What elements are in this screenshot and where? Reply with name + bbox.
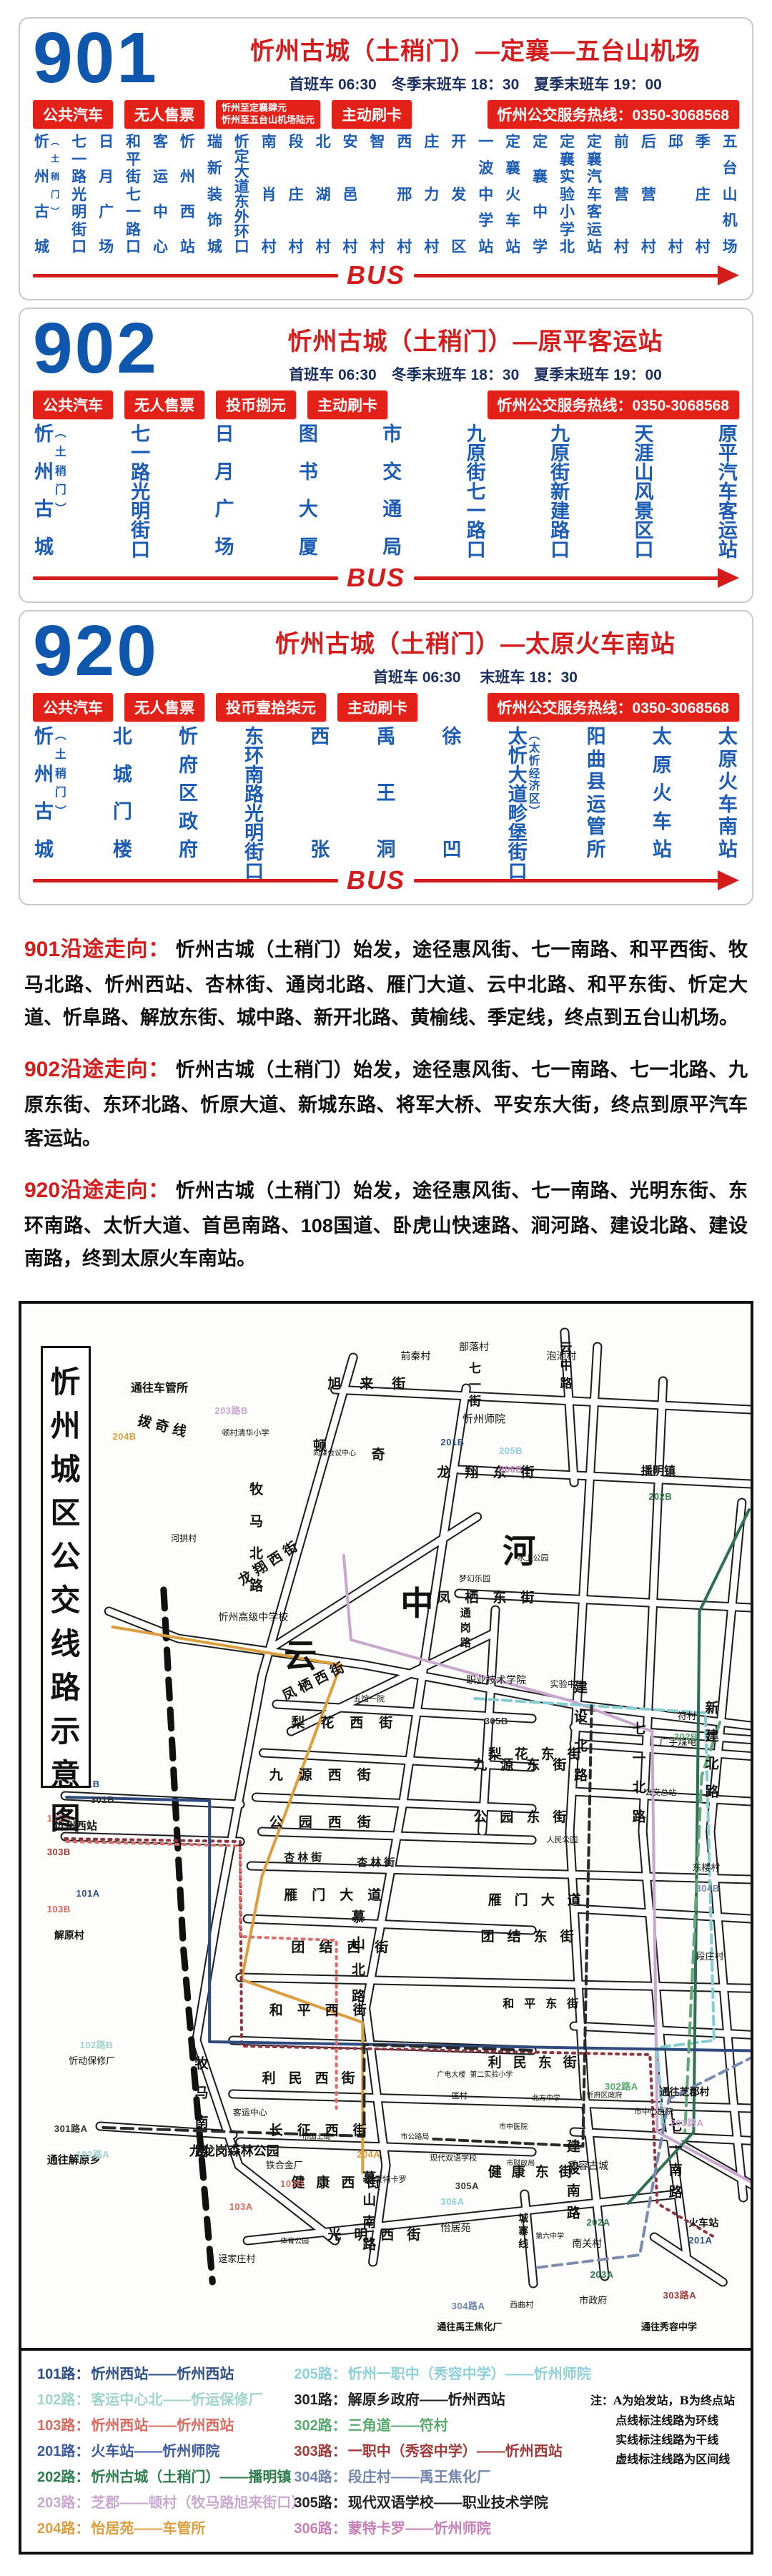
legend-column-right: 205路：忻州一职中（秀容中学）——忻州师院301路：解原乡政府——忻州西站30… xyxy=(294,2362,580,2537)
bus-stop: 定襄实验小学北 xyxy=(560,134,575,255)
legend-item: 303路：一职中（秀容中学）——忻州西站 xyxy=(294,2439,580,2460)
route-description: 901沿途走向：忻州古城（土稍门）始发，途径惠风街、七一南路、和平西街、牧马北路… xyxy=(24,931,748,1034)
legend-item: 302路：三角道——符村 xyxy=(294,2414,580,2434)
route-tag: 201B xyxy=(441,1437,465,1447)
map-label: 段庄村 xyxy=(696,1952,724,1962)
map-label: 逯家庄村 xyxy=(218,2254,255,2264)
bus-stop: 东环南路光明街口 xyxy=(244,727,264,860)
bus-label: BUS xyxy=(347,563,405,593)
bus-direction-line: BUS xyxy=(33,563,739,593)
map-label: 旭来街 xyxy=(327,1377,424,1392)
map-label: 五馆一院 xyxy=(353,1696,385,1704)
badge-row: 公共汽车无人售票投币壹拾柒元主动刷卡忻州公交服务热线：0350-3068568 xyxy=(33,693,739,722)
map-label: 中 xyxy=(400,1586,433,1621)
route-tag: 303路A xyxy=(663,2291,697,2301)
bus-stop: 太原火车南站 xyxy=(718,727,738,860)
map-label: 杏林街 xyxy=(357,1857,397,1869)
legend-item: 202路：忻州古城（土稍门）——播明镇 xyxy=(37,2465,288,2486)
route-card-902: 902 忻州古城（土稍门）—原平客运站 首班车 06:30 冬季末班车 18：3… xyxy=(19,308,753,603)
map-label: 忻州高级中学校 xyxy=(218,1612,288,1623)
map-label: 九龙岗森林公园 xyxy=(189,2145,279,2158)
route-tag: 204B xyxy=(113,1432,137,1442)
route-title: 忻州古城（土稍门）—太原火车南站 xyxy=(212,624,739,659)
map-label: 建设北路 xyxy=(572,1680,586,1797)
bus-stop: 日月广场 xyxy=(214,425,234,557)
bus-stop: 忻州古城︵土稍门︶ xyxy=(34,134,59,255)
map-legend: 101路：忻州西站——忻州西站102路：客运中心北——忻运保修厂103路：忻州西… xyxy=(21,2348,751,2552)
badge: 忻州公交服务热线：0350-3068568 xyxy=(488,100,739,129)
bus-stop: 九原街新建路口 xyxy=(550,425,570,557)
route-tag: 101A xyxy=(76,1889,100,1899)
map-label: 东楼村 xyxy=(692,1863,720,1873)
route-header: 901 忻州古城（土稍门）—定襄—五台山机场 首班车 06:30 冬季末班车 1… xyxy=(33,24,739,94)
badge: 投币壹拾柒元 xyxy=(216,693,326,722)
map-label: 体育公园 xyxy=(280,2238,309,2246)
legend-item: 203路：芝郡——顿村（牧马路旭来街口） xyxy=(37,2491,288,2512)
route-tag: 302路A xyxy=(605,2082,638,2092)
map-label: 第六中学 xyxy=(535,2233,564,2241)
badge-row: 公共汽车无人售票忻州至定襄肆元忻州至五台山机场陆元主动刷卡忻州公交服务热线：03… xyxy=(33,100,739,129)
map-label: 秀容古城 xyxy=(568,2160,608,2171)
badge: 无人售票 xyxy=(124,100,204,129)
bus-stop: 原平汽车客运站 xyxy=(718,425,738,557)
map-label: 泡池村 xyxy=(546,1351,576,1362)
route-tag: 203A xyxy=(590,2270,614,2280)
map-label: 西曲村 xyxy=(510,2301,533,2310)
map-label: 怡居苑 xyxy=(441,2223,471,2233)
route-tag: 304路A xyxy=(452,2301,485,2311)
bus-stop: 七一路光明街口 xyxy=(71,134,86,255)
bus-stop: 九原街七一路口 xyxy=(467,425,486,557)
map-label: 团结东街 xyxy=(481,1930,587,1945)
route-tag: 204A xyxy=(357,2150,380,2160)
badge-row: 公共汽车无人售票投币捌元主动刷卡忻州公交服务热线：0350-3068568 xyxy=(33,390,739,419)
route-header: 902 忻州古城（土稍门）—原平客运站 首班车 06:30 冬季末班车 18：3… xyxy=(33,315,739,385)
map-label: 公交总站 xyxy=(645,1789,676,1798)
badge: 主动刷卡 xyxy=(307,390,387,419)
bus-stop: 后营村 xyxy=(641,134,656,255)
bus-stop: 五台山机场 xyxy=(723,134,738,255)
stop-list: 忻州古城︵土稍门︶七一路光明街口日月广场和平街七一路口客运中心忻州西站瑞新装饰城… xyxy=(34,134,738,255)
map-label: 蒙特卡罗 xyxy=(375,2176,407,2185)
map-label: 杏林街 xyxy=(284,1852,325,1864)
bus-stop: 北城门楼 xyxy=(113,727,132,860)
route-number: 920 xyxy=(33,617,212,685)
route-tag: 103B xyxy=(280,2179,304,2189)
map-label: 前秦村 xyxy=(400,1351,430,1362)
bus-stop: 徐凹 xyxy=(442,727,462,860)
map-label: 七一北路 xyxy=(630,1721,645,1839)
map-label: 凤栖东街 xyxy=(437,1591,548,1606)
route-times: 首班车 06:30 冬季末班车 18：30 夏季末班车 19：00 xyxy=(212,73,739,94)
badge: 公共汽车 xyxy=(33,100,113,129)
route-card-920: 920 忻州古城（土稍门）—太原火车南站 首班车 06:30 末班车 18：30… xyxy=(19,610,753,905)
map-label: 部落村 xyxy=(459,1342,489,1352)
badge: 无人售票 xyxy=(124,693,204,722)
route-number: 901 xyxy=(33,24,212,92)
route-line xyxy=(414,274,719,277)
route-tag: 102路B xyxy=(80,2040,114,2050)
map-label: 忻府区政府 xyxy=(587,2093,623,2100)
route-tag: 203路B xyxy=(214,1406,248,1416)
map-label: 梨花西街 xyxy=(291,1716,408,1731)
map-label: 通往秀容中学 xyxy=(641,2322,697,2332)
map-label: 河 xyxy=(503,1534,535,1568)
route-tag: 202A xyxy=(587,2218,610,2228)
bus-stop: 七一路光明街口 xyxy=(131,425,150,557)
map-label: 现代双语学校 xyxy=(430,2155,477,2163)
bus-stop: 忻州西站 xyxy=(180,134,195,255)
bus-stop: 季庄村 xyxy=(696,134,711,255)
map-label: 云 xyxy=(284,1638,317,1673)
legend-item: 103路：忻州西站——忻州西站 xyxy=(37,2414,288,2434)
route-tag: 205B xyxy=(499,1446,523,1456)
badge: 公共汽车 xyxy=(33,390,113,419)
badge: 忻州公交服务热线：0350-3068568 xyxy=(488,693,739,722)
badge: 主动刷卡 xyxy=(332,100,412,129)
route-description: 920沿途走向：忻州古城（土稍门）始发，途径惠风街、七一南路、光明东街、东环南路… xyxy=(24,1172,748,1275)
bus-stop: 天涯山风景区口 xyxy=(635,425,654,557)
map-label: 忻州师院 xyxy=(462,1414,505,1425)
bus-stop: 安邑村 xyxy=(343,134,358,255)
bus-stop: 禹王洞 xyxy=(376,727,395,860)
map-label: 通往禹王焦化厂 xyxy=(437,2322,502,2332)
bus-direction-line: BUS xyxy=(33,260,739,290)
map-label: 北方中学 xyxy=(532,2095,560,2103)
route-card-901: 901 忻州古城（土稍门）—定襄—五台山机场 首班车 06:30 冬季末班车 1… xyxy=(19,17,753,300)
legend-item: 304路：段庄村——禹王焦化厂 xyxy=(294,2465,580,2486)
map-label: 云中路 xyxy=(558,1341,570,1395)
route-tag: 304B xyxy=(696,1884,720,1894)
badge: 忻州公交服务热线：0350-3068568 xyxy=(488,390,739,419)
map-label: 雁门大道 xyxy=(488,1894,594,1908)
map-label: 利民东街 xyxy=(488,2056,588,2070)
map-label: 通往车管所 xyxy=(131,1383,188,1395)
route-number: 902 xyxy=(33,315,212,383)
bus-stop: 瑞新装饰城 xyxy=(207,134,222,255)
badge: 无人售票 xyxy=(124,390,204,419)
legend-item: 101路：忻州西站——忻州西站 xyxy=(37,2362,288,2383)
route-tag: 302B xyxy=(674,1732,698,1742)
legend-item: 306路：蒙特卡罗——忻州师院 xyxy=(294,2517,580,2537)
legend-item: 205路：忻州一职中（秀容中学）——忻州师院 xyxy=(294,2362,580,2383)
bus-stop: 段庄村 xyxy=(289,134,304,255)
map-label: 七一南路 xyxy=(667,2118,681,2207)
route-tag: 201A xyxy=(688,2236,712,2246)
map-label: 市公路局 xyxy=(400,2134,429,2142)
stop-list: 忻州古城︵土稍门︶北城门楼忻府区政府东环南路光明街口西张禹王洞徐凹太忻大道畛堡街… xyxy=(34,727,738,860)
bus-stop: 邱村 xyxy=(668,134,683,255)
bus-stop: 客运中心 xyxy=(153,134,168,255)
bus-stop: 西邢村 xyxy=(397,134,412,255)
route-line xyxy=(414,879,719,883)
map-label: 符村 xyxy=(678,1711,696,1721)
map-label: 市国土局 xyxy=(302,2134,331,2142)
map-label: 实验中学 xyxy=(550,1680,585,1689)
bus-stop: 南肖村 xyxy=(262,134,277,255)
map-label: 南关村 xyxy=(572,2238,602,2249)
map-label: 七一街 xyxy=(466,1362,479,1411)
map-label: 广电大楼 xyxy=(437,2072,465,2080)
bus-stop: 和平街七一路口 xyxy=(126,134,141,255)
legend-note: 注：A为始发站，B为终点站点线标注线路为环线实线标注线路为干线虚线标注线路为区间… xyxy=(590,2362,735,2537)
route-tag: 303B xyxy=(47,1847,71,1857)
route-tag: 103A xyxy=(229,2202,253,2212)
map-label: 新建北路 xyxy=(703,1701,718,1812)
bus-stop: 一波中学站 xyxy=(478,134,493,255)
map-label: 公园东街 xyxy=(473,1811,579,1825)
city-map: 忻州城区公交线路示意图 旭来街拨奇线顿奇龙翔东街龙翔西街凤栖东街凤栖西街梨花西街… xyxy=(21,1304,751,2348)
route-title: 忻州古城（土稍门）—原平客运站 xyxy=(212,322,739,357)
map-title: 忻州城区公交线路示意图 xyxy=(41,1346,91,1788)
route-description: 902沿途走向：忻州古城（土稍门）始发，途径惠风街、七一南路、七一北路、九原东街… xyxy=(24,1051,748,1154)
map-label: 同煤会议中心 xyxy=(313,1450,356,1458)
map-label: 牧马北路 xyxy=(247,1482,262,1611)
bus-stop: 定襄汽车客运站 xyxy=(587,134,602,255)
bus-stop: 市交通局 xyxy=(382,425,402,557)
map-label: 市财政局 xyxy=(506,2160,535,2168)
map-label: 城寨线 xyxy=(518,2213,528,2251)
route-tag: 301B xyxy=(91,1795,114,1805)
bus-stop: 忻府区政府 xyxy=(179,727,198,860)
bus-stop: 日月广场 xyxy=(99,134,114,255)
bus-label: BUS xyxy=(347,260,405,290)
bus-stop: 太忻大道畛堡街口︵太忻经济区︶ xyxy=(508,727,540,860)
map-label: 通往芝郡村 xyxy=(660,2087,710,2098)
bus-stop: 忻定大道东外环口 xyxy=(234,134,249,255)
bus-stop: 太原火车站 xyxy=(653,727,672,860)
map-label: 慕山南路 xyxy=(360,2171,375,2259)
map-label: 龙翔东街 xyxy=(437,1466,548,1480)
map-label: 忻动保修厂 xyxy=(69,2056,115,2066)
bus-stop: 北湖村 xyxy=(316,134,331,255)
bus-stop: 忻州古城︵土稍门︶ xyxy=(34,425,66,557)
route-times: 首班车 06:30 末班车 18：30 xyxy=(212,666,739,687)
badge: 公共汽车 xyxy=(33,693,113,722)
legend-item: 201路：火车站——忻州师院 xyxy=(37,2439,288,2460)
legend-item: 301路：解原乡政府——忻州西站 xyxy=(294,2388,580,2409)
map-label: 通岗路 xyxy=(459,1607,470,1652)
map-label: 慕山北路 xyxy=(350,1909,364,2015)
route-line xyxy=(414,576,719,580)
bus-stop: 定襄火车站 xyxy=(505,134,520,255)
map-label: 解原村 xyxy=(54,1930,84,1941)
map-label: 客运中心 xyxy=(233,2108,267,2118)
route-title: 忻州古城（土稍门）—定襄—五台山机场 xyxy=(212,31,739,67)
arrow-right-icon xyxy=(718,870,739,890)
route-line xyxy=(33,879,338,883)
route-tag: 305B xyxy=(485,1716,508,1726)
badge: 投币捌元 xyxy=(216,390,296,419)
legend-item: 305路：现代双语学校——职业技术学院 xyxy=(294,2491,580,2512)
route-tag: 103B xyxy=(47,1904,71,1914)
bus-stop: 忻州古城︵土稍门︶ xyxy=(34,727,66,860)
badge: 忻州至定襄肆元忻州至五台山机场陆元 xyxy=(216,100,320,129)
route-times: 首班车 06:30 冬季末班车 18：30 夏季末班车 19：00 xyxy=(212,363,739,385)
map-label: 市政府 xyxy=(579,2296,607,2306)
bus-stop: 开发区 xyxy=(451,134,466,255)
route-tag: 306A xyxy=(441,2197,465,2207)
map-label: 水上公园 xyxy=(518,1555,549,1563)
route-line xyxy=(33,274,338,277)
route-tag: 305A xyxy=(455,2181,479,2191)
route-tag: 306B xyxy=(499,1465,523,1475)
route-descriptions: 901沿途走向：忻州古城（土稍门）始发，途径惠风街、七一南路、和平西街、牧马北路… xyxy=(19,913,753,1298)
route-tag: 202B xyxy=(648,1492,672,1502)
route-tag: 102路A xyxy=(76,2150,110,2160)
route-tag: 203路A xyxy=(670,2118,704,2128)
map-label: 顿村清华小学 xyxy=(222,1430,269,1438)
map-label: 雁门大道 xyxy=(284,1889,395,1903)
map-label: 团结西街 xyxy=(291,1941,402,1955)
route-tag: 301路A xyxy=(54,2124,88,2134)
badge: 主动刷卡 xyxy=(337,693,417,722)
map-label: 市中医院 xyxy=(499,2124,528,2132)
map-label: 职业技术学院 xyxy=(466,1675,526,1686)
map-label: 第二实验小学 xyxy=(470,2072,513,2080)
bus-stop: 图书大厦 xyxy=(299,425,318,557)
map-label: 梦幻乐园 xyxy=(459,1575,490,1584)
map-label: 九源东街 xyxy=(473,1759,579,1773)
legend-item: 204路：怡居苑——车管所 xyxy=(37,2517,288,2537)
map-label: 和平东街 xyxy=(503,1998,588,2010)
legend-item: 102路：客运中心北——忻运保修厂 xyxy=(37,2388,288,2409)
bus-route-poster: 901 忻州古城（土稍门）—定襄—五台山机场 首班车 06:30 冬季末班车 1… xyxy=(0,0,772,2576)
bus-direction-line: BUS xyxy=(33,865,739,895)
map-label: 匡村 xyxy=(452,2093,467,2101)
map-label: 公园西街 xyxy=(269,1816,387,1830)
arrow-right-icon xyxy=(718,265,739,285)
map-label: 火车站 xyxy=(688,2218,718,2228)
map-label: 建设南路 xyxy=(565,2139,579,2228)
map-label: 播明镇 xyxy=(641,1466,675,1478)
arrow-right-icon xyxy=(718,568,739,588)
bus-stop: 庄力村 xyxy=(424,134,439,255)
bus-stop: 西张 xyxy=(310,727,330,860)
map-label: 河拱村 xyxy=(171,1534,197,1543)
map-label: 光明西街 xyxy=(327,2228,433,2243)
bus-stop: 智村 xyxy=(370,134,385,255)
bus-stop: 前营村 xyxy=(614,134,629,255)
route-header: 920 忻州古城（土稍门）—太原火车南站 首班车 06:30 末班车 18：30 xyxy=(33,617,739,687)
bus-stop: 阳曲县运管所 xyxy=(587,727,606,860)
route-line xyxy=(33,576,338,580)
bus-label: BUS xyxy=(347,865,405,895)
map-label: 九源西街 xyxy=(269,1769,387,1783)
map-label: 利民西街 xyxy=(262,2072,368,2086)
map-label: 人民公园 xyxy=(546,1837,578,1845)
map-label: 市中心医院 xyxy=(634,2108,673,2117)
bus-stop: 定襄中学 xyxy=(533,134,548,255)
legend-column-left: 101路：忻州西站——忻州西站102路：客运中心北——忻运保修厂103路：忻州西… xyxy=(37,2362,288,2537)
map-label: 铁合金厂 xyxy=(266,2160,303,2171)
city-bus-map-panel: 忻州城区公交线路示意图 旭来街拨奇线顿奇龙翔东街龙翔西街凤栖东街凤栖西街梨花西街… xyxy=(19,1301,753,2555)
map-label: 奇 xyxy=(372,1448,385,1462)
stop-list: 忻州古城︵土稍门︶七一路光明街口日月广场图书大厦市交通局九原街七一路口九原街新建… xyxy=(34,425,738,557)
